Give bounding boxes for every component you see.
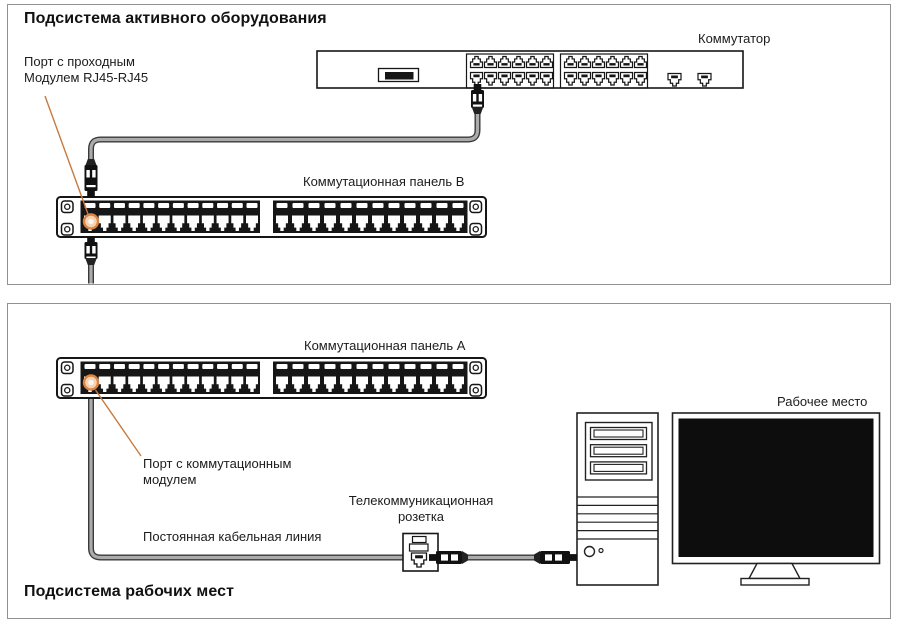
label-patch-panel-b: Коммутационная панель B bbox=[303, 174, 464, 190]
monitor-screen bbox=[679, 419, 874, 558]
field-center-gap bbox=[260, 361, 273, 396]
port-contact-bar bbox=[473, 75, 479, 78]
module-slot bbox=[232, 203, 243, 208]
patch-panel-b bbox=[57, 197, 486, 237]
screw-hole bbox=[473, 227, 478, 232]
patch-cord-switch-to-panel-b bbox=[91, 108, 478, 163]
module-slot bbox=[293, 203, 304, 208]
module-slot bbox=[293, 364, 304, 369]
module-slot bbox=[357, 203, 368, 208]
monitor-base bbox=[741, 579, 809, 586]
port-contact-bar bbox=[487, 75, 493, 78]
module-slot bbox=[143, 364, 154, 369]
port-contact-bar bbox=[473, 63, 479, 65]
module-slot bbox=[405, 364, 416, 369]
plug-slot bbox=[545, 554, 552, 560]
module-slot bbox=[114, 203, 125, 208]
module-slot bbox=[325, 203, 336, 208]
module-slot bbox=[389, 203, 400, 208]
port-contact-bar bbox=[623, 63, 629, 65]
plug-nose bbox=[87, 191, 95, 198]
label-line: Телекоммуникационная bbox=[330, 493, 512, 509]
plug-boot bbox=[462, 551, 468, 564]
label-line: Порт с проходным bbox=[24, 54, 148, 70]
module-slot bbox=[357, 364, 368, 369]
label-patch-module-port: Порт с коммутационным модулем bbox=[143, 456, 291, 488]
module-slot bbox=[173, 203, 184, 208]
plug-nose bbox=[87, 236, 95, 243]
leader-line-patch-module-port bbox=[96, 390, 142, 456]
module-slot bbox=[85, 364, 96, 369]
port-contact-bar bbox=[637, 75, 643, 78]
field-center-gap bbox=[260, 200, 273, 235]
port-contact-bar bbox=[515, 63, 521, 65]
screw-hole bbox=[473, 388, 478, 393]
plug-nose bbox=[570, 554, 577, 561]
module-slot bbox=[437, 203, 448, 208]
screw-hole bbox=[65, 204, 70, 209]
module-slot bbox=[309, 203, 320, 208]
system-unit bbox=[577, 413, 658, 585]
module-slot bbox=[341, 203, 352, 208]
port-contact-bar bbox=[515, 75, 521, 78]
module-slot bbox=[437, 364, 448, 369]
plug-slot bbox=[451, 554, 458, 560]
port-contact-bar bbox=[581, 75, 587, 78]
module-slot bbox=[158, 203, 169, 208]
plug-boot bbox=[85, 159, 97, 166]
plugs bbox=[85, 84, 578, 564]
port-contact-bar bbox=[543, 63, 549, 65]
plug-into-panel-b-top bbox=[85, 159, 98, 198]
plug-slot bbox=[555, 554, 562, 560]
module-slot bbox=[325, 364, 336, 369]
module-slot bbox=[421, 364, 432, 369]
module-slot bbox=[421, 203, 432, 208]
monitor bbox=[673, 413, 880, 585]
port-contact-bar bbox=[609, 75, 615, 78]
label-patch-panel-a: Коммутационная панель A bbox=[304, 338, 465, 354]
plug-slot bbox=[92, 246, 95, 254]
port-contact-bar bbox=[567, 63, 573, 65]
screw-hole bbox=[65, 227, 70, 232]
module-slot bbox=[143, 203, 154, 208]
label-passthrough-port: Порт с проходным Модулем RJ45-RJ45 bbox=[24, 54, 148, 86]
module-slot bbox=[99, 203, 110, 208]
module-slot bbox=[99, 364, 110, 369]
label-line: Порт с коммутационным bbox=[143, 456, 291, 472]
highlight-center bbox=[88, 219, 94, 225]
module-slot bbox=[309, 364, 320, 369]
plug-latch bbox=[473, 105, 482, 107]
module-slot bbox=[129, 364, 140, 369]
plug-slot bbox=[86, 246, 89, 254]
module-slot bbox=[389, 364, 400, 369]
plug-nose bbox=[429, 554, 436, 561]
patch-panel-a bbox=[57, 358, 486, 398]
cable-core bbox=[91, 108, 478, 163]
port-contact-bar bbox=[529, 63, 535, 65]
cable-outline bbox=[91, 108, 478, 163]
module-slot bbox=[217, 203, 228, 208]
highlight-center bbox=[88, 380, 94, 386]
module-slot bbox=[114, 364, 125, 369]
switch-device bbox=[317, 51, 743, 88]
module-slot bbox=[247, 203, 258, 208]
plug-slot bbox=[473, 94, 476, 102]
module-slot bbox=[129, 203, 140, 208]
module-slot bbox=[453, 364, 464, 369]
screw-hole bbox=[473, 204, 478, 209]
network-diagram-graphics bbox=[0, 0, 899, 626]
port-contact-bar bbox=[701, 76, 708, 79]
label-telecom-outlet: Телекоммуникационная розетка bbox=[330, 493, 512, 525]
plug-slot bbox=[441, 554, 448, 560]
diagram-canvas: Подсистема активного оборудования Порт с… bbox=[0, 0, 899, 626]
screw-hole bbox=[65, 388, 70, 393]
plug-boot bbox=[85, 258, 97, 265]
section-title-workplaces: Подсистема рабочих мест bbox=[24, 584, 234, 600]
module-slot bbox=[247, 364, 258, 369]
module-slot bbox=[232, 364, 243, 369]
plug-into-panel-b-bottom bbox=[85, 236, 98, 265]
module-slot bbox=[173, 364, 184, 369]
section-title-active-equipment: Подсистема активного оборудования bbox=[24, 11, 327, 27]
plug-boot bbox=[472, 107, 484, 114]
port-contact-bar bbox=[543, 75, 549, 78]
module-slot bbox=[405, 203, 416, 208]
plug-into-pc bbox=[534, 551, 577, 564]
plug-body bbox=[436, 551, 462, 564]
power-button bbox=[585, 547, 595, 557]
module-slot bbox=[188, 203, 199, 208]
port-contact-bar bbox=[595, 63, 601, 65]
module-slot bbox=[453, 203, 464, 208]
port-contact-bar bbox=[415, 555, 423, 558]
screw-hole bbox=[473, 365, 478, 370]
plug-latch bbox=[86, 185, 95, 187]
module-slot bbox=[373, 203, 384, 208]
module-slot bbox=[217, 364, 228, 369]
port-contact-bar bbox=[637, 63, 643, 65]
plug-slot bbox=[479, 94, 482, 102]
switch-display bbox=[385, 72, 414, 80]
port-contact-bar bbox=[567, 75, 573, 78]
port-contact-bar bbox=[581, 63, 587, 65]
plug-boot bbox=[534, 551, 540, 564]
port-contact-bar bbox=[595, 75, 601, 78]
module-slot bbox=[188, 364, 199, 369]
port-contact-bar bbox=[529, 75, 535, 78]
module-slot bbox=[341, 364, 352, 369]
screw-hole bbox=[65, 365, 70, 370]
label-workplace: Рабочее место bbox=[777, 394, 867, 410]
port-contact-bar bbox=[487, 63, 493, 65]
plug-slot bbox=[92, 170, 95, 178]
module-slot bbox=[277, 364, 288, 369]
label-line: розетка bbox=[330, 509, 512, 525]
label-line: Модулем RJ45-RJ45 bbox=[24, 70, 148, 86]
outlet-shutter bbox=[410, 544, 429, 551]
plug-nose bbox=[474, 84, 482, 91]
port-contact-bar bbox=[671, 76, 678, 79]
module-slot bbox=[277, 203, 288, 208]
port-contact-bar bbox=[623, 75, 629, 78]
power-led bbox=[599, 549, 603, 553]
module-slot bbox=[202, 203, 213, 208]
telecom-outlet bbox=[403, 534, 438, 572]
module-slot bbox=[202, 364, 213, 369]
port-contact-bar bbox=[501, 75, 507, 78]
module-slot bbox=[373, 364, 384, 369]
monitor-stand bbox=[749, 564, 800, 579]
outlet-label-window bbox=[413, 537, 427, 543]
label-permanent-link: Постоянная кабельная линия bbox=[143, 529, 321, 545]
label-switch: Коммутатор bbox=[698, 31, 770, 47]
module-slot bbox=[158, 364, 169, 369]
port-contact-bar bbox=[609, 63, 615, 65]
tower-case bbox=[577, 413, 658, 585]
label-line: модулем bbox=[143, 472, 291, 488]
plug-slot bbox=[86, 170, 89, 178]
port-contact-bar bbox=[501, 63, 507, 65]
